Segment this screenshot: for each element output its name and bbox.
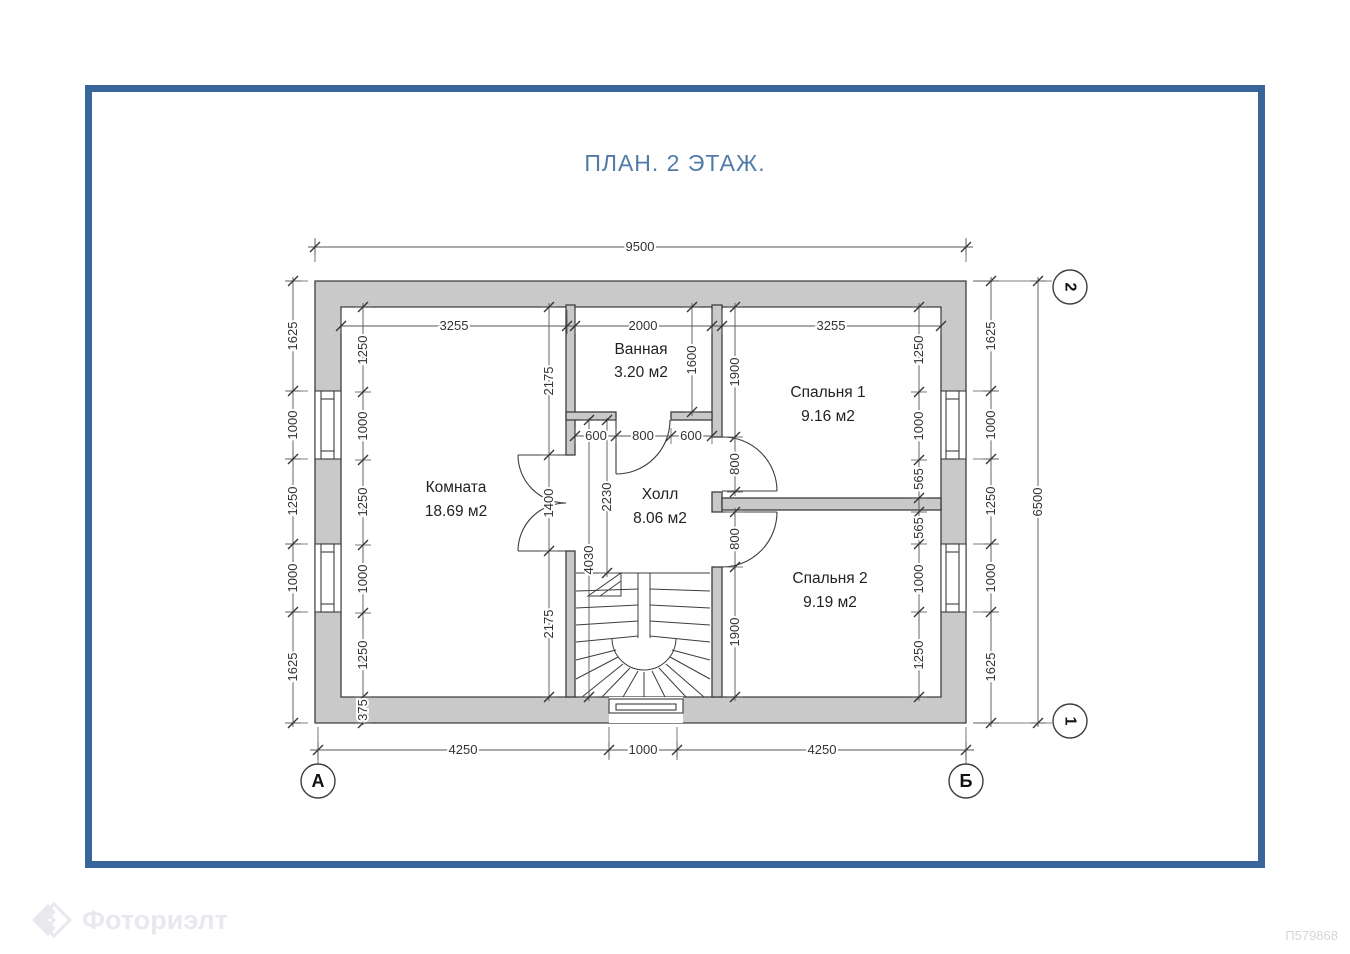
dim-label: 1000 [355,565,370,594]
dim-label: 1625 [983,322,998,351]
dim-label: 2000 [629,318,658,333]
watermark-text: Фоториэлт [82,905,228,936]
window-left-2 [315,544,341,612]
dim-label: 1250 [355,336,370,365]
dim-label: 1250 [355,641,370,670]
dim-label: 3255 [440,318,469,333]
room-area-spalnya1: 9.16 м2 [801,408,855,425]
room-name-holl: Холл [642,486,679,503]
axis-label-2: 2 [1062,283,1079,292]
dim-label: 2175 [541,610,556,639]
room-area-spalnya2: 9.19 м2 [803,594,857,611]
watermark: Фоториэлт [28,900,228,940]
axis-label-1: 1 [1062,717,1079,726]
dim-label: 4030 [581,546,596,575]
window-right-1 [941,391,966,459]
room-name-vannaya: Ванная [614,341,667,358]
dim-label: 800 [727,453,742,475]
dim-label: 375 [355,699,370,721]
dim-label: 1000 [355,412,370,441]
room-name-spalnya2: Спальня 2 [792,570,867,587]
dim-label: 1625 [285,653,300,682]
dim-label: 1250 [911,336,926,365]
room-labels: Комната 18.69 м2 Ванная 3.20 м2 Холл 8.0… [425,341,868,611]
dim-label: 2175 [541,367,556,396]
dim-label: 1000 [629,742,658,757]
dim-label: 1000 [285,411,300,440]
window-left-1 [315,391,341,459]
dim-label: 800 [632,428,654,443]
dim-label: 565 [911,517,926,539]
dim-label: 1625 [285,322,300,351]
dim-label: 1600 [684,346,699,375]
dim-label: 1000 [983,411,998,440]
wall-hall-bed2 [712,567,722,697]
dim-label: 1250 [911,641,926,670]
dim-label: 1000 [983,564,998,593]
window-right-2 [941,544,966,612]
dim-label: 1250 [355,488,370,517]
dim-label: 2230 [599,483,614,512]
floor-plan-drawing: А Б 2 1 Комната 18.69 м2 Ванная 3.20 м2 … [0,0,1350,954]
dim-label: 1000 [911,565,926,594]
dim-label: 1900 [727,358,742,387]
dim-label: 4250 [808,742,837,757]
room-area-vannaya: 3.20 м2 [614,364,668,381]
dim-label: 1900 [727,618,742,647]
dim-label: 1000 [911,412,926,441]
window-bottom [609,697,683,723]
room-name-spalnya1: Спальня 1 [790,384,865,401]
dim-label: 1625 [983,653,998,682]
room-area-holl: 8.06 м2 [633,510,687,527]
wall-bed-divider [722,498,941,510]
axis-label-a: А [312,771,325,791]
dim-label: 9500 [626,239,655,254]
page: ПЛАН. 2 ЭТАЖ. [0,0,1350,954]
dim-label: 600 [585,428,607,443]
room-area-komnata: 18.69 м2 [425,503,487,520]
stair-direction-arrow [588,573,621,596]
dim-label: 6500 [1030,488,1045,517]
dim-label: 600 [680,428,702,443]
staircase [576,573,710,697]
axis-label-b: Б [960,771,973,791]
dim-label: 800 [727,528,742,550]
room-name-komnata: Комната [426,479,487,496]
dim-label: 4250 [449,742,478,757]
dim-label: 565 [911,468,926,490]
wall-hall-stub [712,492,722,512]
dim-label: 1250 [285,487,300,516]
wall-room-hall-lower [566,551,575,697]
dim-label: 1000 [285,564,300,593]
doc-number: П579868 [1285,928,1338,943]
dim-label: 1250 [983,487,998,516]
dim-label: 3255 [817,318,846,333]
dim-label: 1400 [541,489,556,518]
watermark-logo-icon [28,900,74,940]
